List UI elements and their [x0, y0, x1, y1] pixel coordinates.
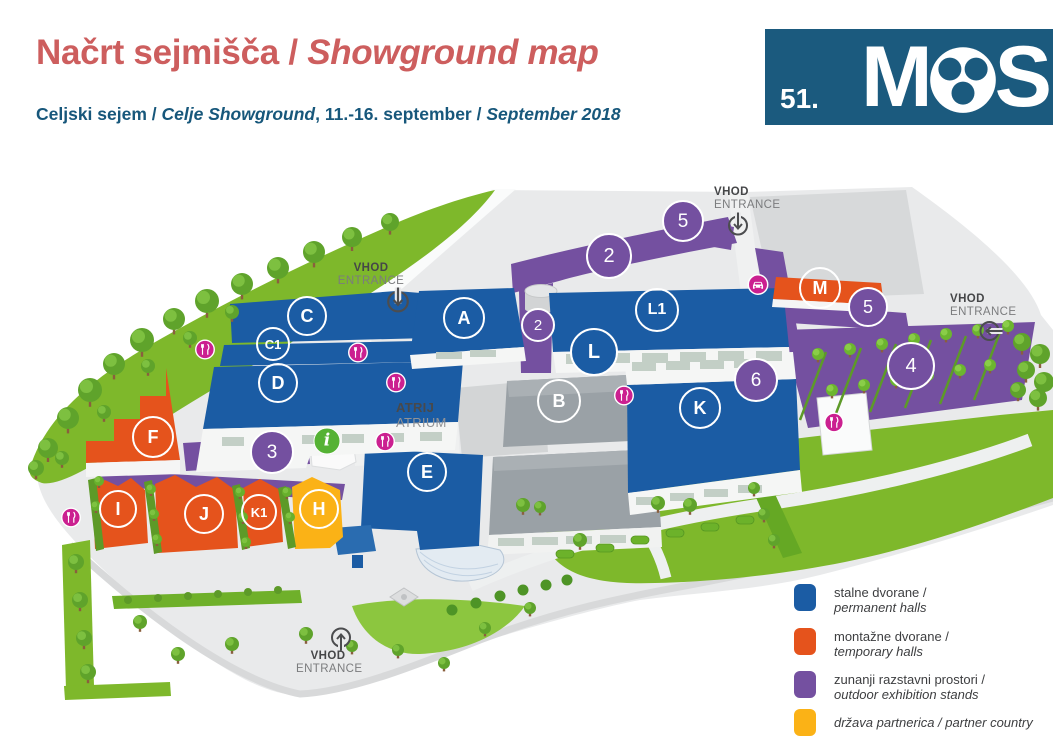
entrance-arrow-down-icon	[385, 288, 411, 319]
entrance-right: VHOD ENTRANCE	[950, 293, 1016, 319]
legend-item-temporary: montažne dvorane /temporary halls	[794, 628, 949, 659]
entrance-arrow-left-icon	[974, 319, 1003, 343]
entrance-arrow-down-icon	[726, 213, 750, 242]
logo-mos: M S	[861, 27, 1048, 127]
hall-label-j: J	[184, 494, 224, 534]
hall-label-k1: K1	[241, 494, 277, 530]
hall-label-b: B	[537, 379, 581, 423]
restaurant-icon	[824, 412, 845, 438]
restaurant-icon	[61, 507, 82, 533]
hall-label-h: H	[299, 489, 339, 529]
atrium-label: ATRIJ ATRIUM	[396, 401, 447, 430]
hall-label-l: L	[570, 328, 618, 376]
area-label-5b: 5	[848, 287, 888, 327]
info-icon: i	[314, 428, 341, 455]
entrance-top-center: VHOD ENTRANCE	[333, 262, 409, 288]
area-label-2a: 2	[586, 233, 632, 279]
logo-edition: 51.	[780, 83, 819, 115]
legend-swatch-partner	[794, 709, 816, 736]
hall-label-c1: C1	[256, 327, 290, 361]
legend-item-permanent: stalne dvorane /permanent halls	[794, 584, 927, 615]
restaurant-icon	[386, 372, 407, 398]
hall-label-m: M	[799, 267, 841, 309]
legend-swatch-temporary	[794, 628, 816, 655]
hall-label-l1: L1	[635, 288, 679, 332]
hall-label-a: A	[443, 297, 485, 339]
legend-item-outdoor: zunanji razstavni prostori /outdoor exhi…	[794, 671, 985, 702]
area-label-6: 6	[734, 358, 778, 402]
area-label-5a: 5	[662, 200, 704, 242]
entrance-bottom: VHOD ENTRANCE	[296, 650, 360, 676]
fountain-center	[401, 594, 407, 600]
legend-item-partner: država partnerica / partner country	[794, 709, 1033, 736]
hall-label-f: F	[132, 416, 174, 458]
legend-swatch-outdoor	[794, 671, 816, 698]
entrance-top-right: VHOD ENTRANCE	[714, 186, 780, 212]
title-en: Showground map	[307, 33, 598, 72]
hall-label-c: C	[287, 296, 327, 336]
restaurant-icon	[614, 385, 635, 411]
restaurant-icon	[375, 431, 396, 457]
legend-swatch-permanent	[794, 584, 816, 611]
area-label-2b: 2	[521, 308, 555, 342]
area-label-3: 3	[250, 430, 294, 474]
showground-map-page: Načrt sejmišča / Showground map Celjski …	[0, 0, 1053, 744]
restaurant-icon	[195, 339, 216, 365]
car-icon	[747, 274, 769, 301]
hall-label-e: E	[407, 452, 447, 492]
page-subtitle: Celjski sejem / Celje Showground, 11.-16…	[36, 104, 621, 125]
hall-label-i: I	[99, 490, 137, 528]
mos-logo: 51. M S	[765, 29, 1053, 125]
restaurant-icon	[348, 342, 369, 368]
area-label-4: 4	[887, 342, 935, 390]
hall-label-d: D	[258, 363, 298, 403]
hall-label-k: K	[679, 387, 721, 429]
entrance-arrow-up-icon	[329, 622, 353, 651]
mos-wheel-icon	[928, 45, 998, 115]
page-title: Načrt sejmišča / Showground map	[36, 33, 599, 73]
title-sl: Načrt sejmišča /	[36, 33, 307, 72]
